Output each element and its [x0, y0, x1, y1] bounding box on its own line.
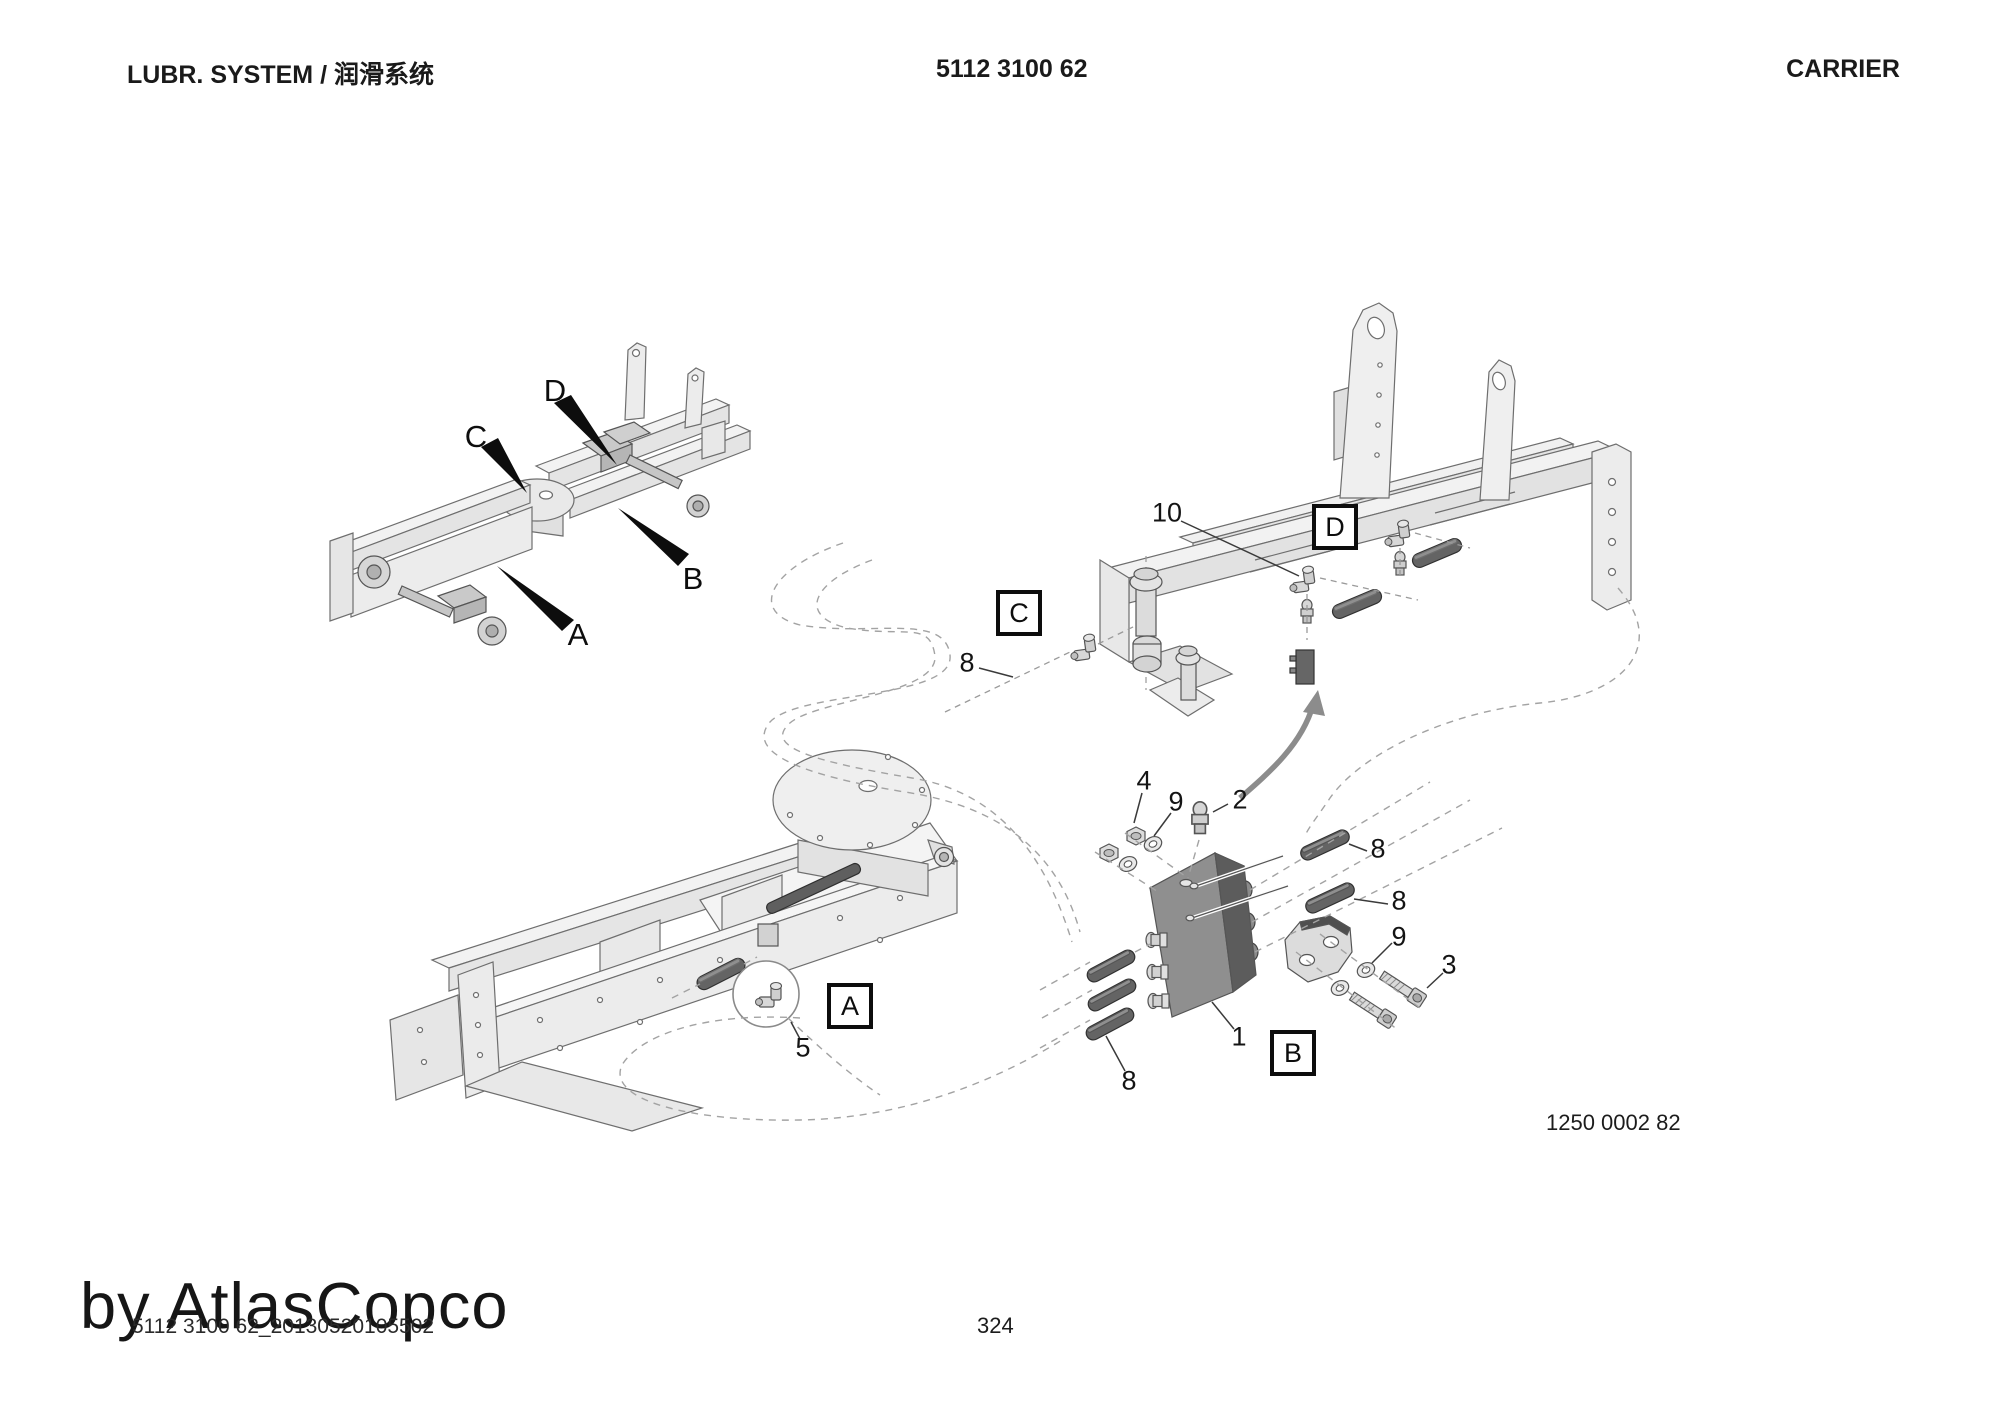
washer-icon	[1329, 978, 1351, 998]
view-label-a: A	[568, 617, 589, 653]
item-callout-3: 3	[1441, 950, 1456, 981]
catalog-page: LUBR. SYSTEM / 润滑系统 5112 3100 62 CARRIER	[0, 0, 2000, 1414]
item-callout-8: 8	[1370, 834, 1385, 865]
item-callout-8: 8	[1121, 1066, 1136, 1097]
view-label-d: D	[544, 373, 566, 409]
overview-chassis-drawing	[330, 343, 750, 645]
detail-box-d: D	[1312, 504, 1358, 550]
grease-elbow-icon	[1287, 565, 1316, 593]
connector-block	[1296, 650, 1314, 684]
figure-ref-number: 1250 0002 82	[1546, 1110, 1681, 1136]
item-callout-10: 10	[1152, 498, 1182, 529]
bolt-icon	[1378, 969, 1427, 1008]
item-callout-8: 8	[959, 648, 974, 679]
item-callout-1: 1	[1231, 1022, 1246, 1053]
wedge-a	[497, 566, 574, 631]
file-id-text: 5112 3100 62_20130520105502	[132, 1315, 434, 1339]
item-callout-8: 8	[1391, 886, 1406, 917]
rear-frame-drawing	[945, 303, 1631, 716]
page-number: 324	[977, 1313, 1014, 1339]
item-callout-2: 2	[1232, 785, 1247, 816]
grease-nipple-icon	[1192, 802, 1208, 834]
flow-arrow	[1240, 705, 1313, 798]
detail-box-b: B	[1270, 1030, 1316, 1076]
item-callout-4: 4	[1136, 766, 1151, 797]
grease-elbow-icon	[1068, 633, 1097, 661]
detail-box-a: A	[827, 983, 873, 1029]
washer-icon	[1117, 854, 1139, 874]
lube-hose	[1330, 587, 1383, 620]
view-label-c: C	[465, 419, 487, 455]
lube-hose	[1303, 881, 1356, 916]
block-fitting-icon	[1146, 933, 1167, 948]
item-callout-9: 9	[1391, 922, 1406, 953]
item-callout-9: 9	[1168, 787, 1183, 818]
wedge-b	[618, 508, 689, 566]
detail-box-c: C	[996, 590, 1042, 636]
lube-hose	[1410, 536, 1463, 569]
lube-hose	[1084, 1006, 1136, 1043]
view-label-b: B	[683, 561, 704, 597]
lubrication-block-assembly	[1084, 690, 1427, 1042]
front-frame-drawing	[390, 750, 957, 1131]
item-callout-5: 5	[795, 1033, 810, 1064]
parts-diagram-art	[0, 0, 2000, 1414]
nut-icon	[1100, 844, 1118, 862]
lube-hose	[1298, 828, 1351, 863]
block-fitting-icon	[1147, 965, 1168, 980]
washer-icon	[1355, 960, 1377, 980]
block-fitting-icon	[1148, 994, 1169, 1009]
